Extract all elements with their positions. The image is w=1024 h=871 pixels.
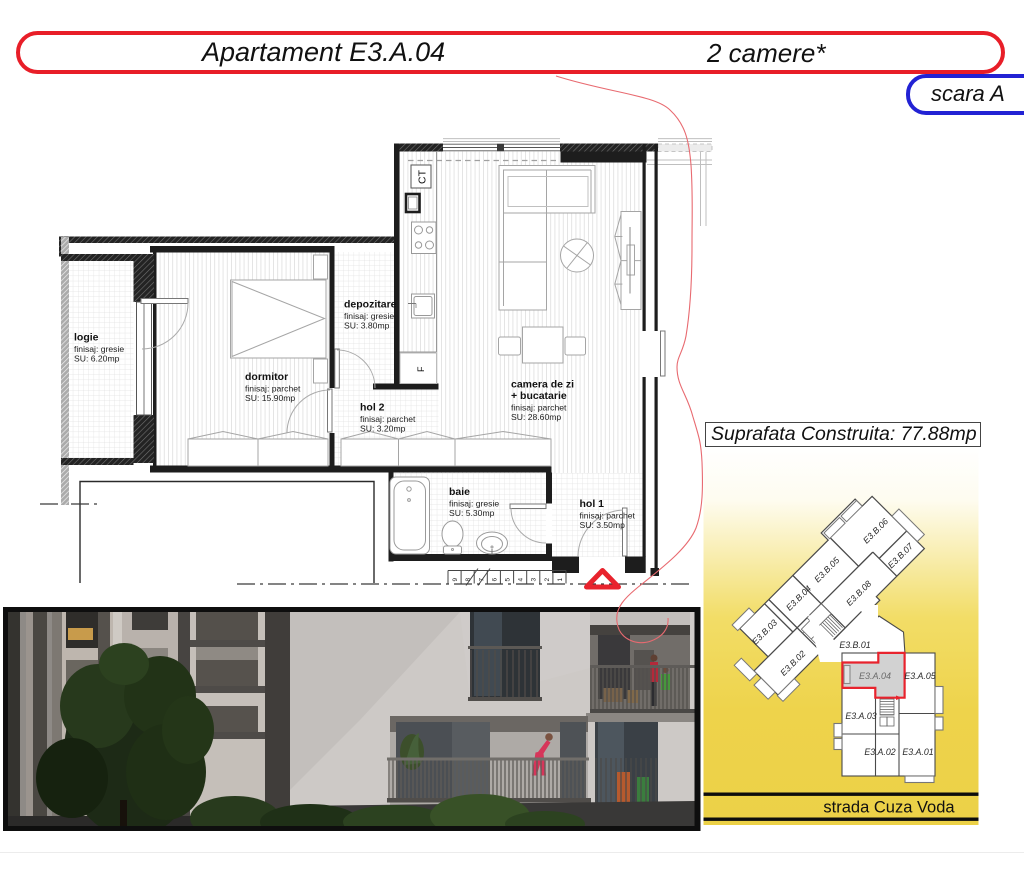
svg-text:2: 2 bbox=[544, 578, 551, 582]
svg-text:8: 8 bbox=[465, 578, 472, 582]
svg-text:SU: 3.50mp: SU: 3.50mp bbox=[580, 520, 626, 530]
svg-text:finisaj: parchet: finisaj: parchet bbox=[245, 384, 301, 394]
svg-text:dormitor: dormitor bbox=[245, 371, 288, 383]
svg-text:finisaj: gresie: finisaj: gresie bbox=[449, 499, 499, 509]
svg-text:finisaj: gresie: finisaj: gresie bbox=[344, 311, 394, 321]
svg-text:E3.A.05: E3.A.05 bbox=[904, 671, 935, 681]
svg-text:strada Cuza Voda: strada Cuza Voda bbox=[823, 799, 955, 817]
svg-text:baie: baie bbox=[449, 486, 470, 498]
svg-text:SU: 15.90mp: SU: 15.90mp bbox=[245, 393, 295, 403]
svg-text:SU: 28.60mp: SU: 28.60mp bbox=[511, 412, 561, 422]
svg-text:E3.B.01: E3.B.01 bbox=[839, 640, 870, 650]
svg-text:SU: 3.20mp: SU: 3.20mp bbox=[360, 424, 406, 434]
svg-text:finisaj: parchet: finisaj: parchet bbox=[360, 414, 416, 424]
svg-text:7: 7 bbox=[478, 578, 485, 582]
svg-text:+ bucatarie: + bucatarie bbox=[511, 390, 567, 402]
svg-text:SU: 5.30mp: SU: 5.30mp bbox=[449, 508, 495, 518]
svg-text:E3.A.02: E3.A.02 bbox=[864, 747, 895, 757]
svg-text:9: 9 bbox=[452, 578, 459, 582]
svg-text:SU: 6.20mp: SU: 6.20mp bbox=[74, 354, 120, 364]
svg-text:camera de zi: camera de zi bbox=[511, 379, 574, 391]
svg-text:6: 6 bbox=[491, 578, 498, 582]
svg-text:E3.A.03: E3.A.03 bbox=[845, 711, 876, 721]
svg-text:5: 5 bbox=[505, 578, 512, 582]
svg-text:finisaj: gresie: finisaj: gresie bbox=[74, 344, 124, 354]
svg-text:finisaj: parchet: finisaj: parchet bbox=[580, 511, 636, 521]
svg-text:depozitare: depozitare bbox=[344, 299, 397, 311]
svg-text:hol 2: hol 2 bbox=[360, 402, 385, 414]
svg-text:F: F bbox=[416, 366, 426, 372]
svg-text:CT: CT bbox=[417, 169, 429, 184]
svg-text:SU: 3.80mp: SU: 3.80mp bbox=[344, 321, 390, 331]
svg-text:3: 3 bbox=[531, 578, 538, 582]
svg-text:logie: logie bbox=[74, 332, 99, 344]
svg-text:E3.A.04: E3.A.04 bbox=[859, 671, 891, 681]
svg-text:1: 1 bbox=[557, 578, 564, 582]
svg-text:4: 4 bbox=[518, 578, 525, 582]
svg-text:E3.A.01: E3.A.01 bbox=[902, 747, 933, 757]
svg-text:hol 1: hol 1 bbox=[580, 498, 605, 510]
svg-text:finisaj: parchet: finisaj: parchet bbox=[511, 403, 567, 413]
